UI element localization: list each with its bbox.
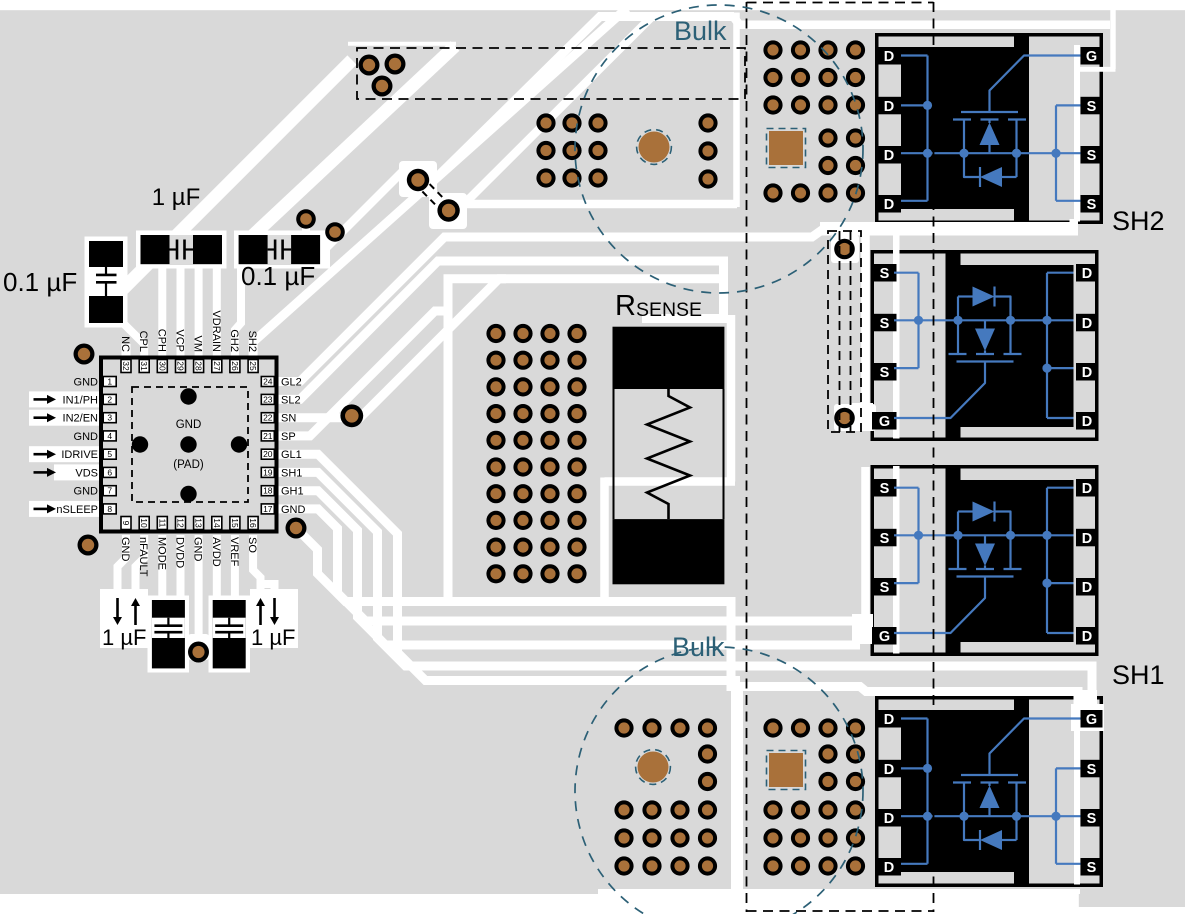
svg-text:nSLEEP: nSLEEP	[56, 504, 98, 516]
svg-text:IN1/PH: IN1/PH	[63, 394, 99, 406]
svg-text:D: D	[1082, 365, 1092, 381]
svg-text:17: 17	[263, 504, 273, 514]
svg-text:1 µF: 1 µF	[152, 184, 201, 211]
svg-text:S: S	[880, 266, 890, 282]
svg-text:G: G	[1086, 712, 1097, 728]
svg-text:S: S	[1087, 811, 1097, 827]
svg-text:28: 28	[194, 361, 204, 371]
svg-text:25: 25	[248, 361, 258, 371]
svg-text:S: S	[880, 580, 890, 596]
svg-text:G: G	[1086, 49, 1097, 65]
svg-text:D: D	[884, 49, 894, 65]
svg-text:IDRIVE: IDRIVE	[61, 449, 98, 461]
svg-text:CPH: CPH	[155, 329, 167, 352]
svg-text:22: 22	[263, 413, 273, 423]
svg-text:D: D	[884, 148, 894, 164]
svg-text:7: 7	[107, 486, 112, 496]
svg-text:19: 19	[263, 467, 273, 477]
svg-text:VCP: VCP	[174, 329, 186, 352]
svg-text:VDS: VDS	[75, 467, 98, 479]
svg-text:AVDD: AVDD	[210, 537, 222, 567]
svg-text:GND: GND	[176, 419, 202, 431]
svg-text:27: 27	[212, 361, 222, 371]
svg-text:S: S	[880, 481, 890, 497]
svg-text:S: S	[1087, 99, 1097, 115]
svg-text:D: D	[1082, 580, 1092, 596]
svg-text:11: 11	[157, 519, 167, 528]
svg-text:21: 21	[263, 431, 273, 441]
svg-text:SH1: SH1	[281, 467, 302, 479]
svg-text:VDRAIN: VDRAIN	[210, 310, 222, 352]
svg-text:2: 2	[107, 394, 112, 404]
svg-text:5: 5	[107, 449, 112, 459]
svg-text:S: S	[880, 365, 890, 381]
svg-text:26: 26	[230, 361, 240, 371]
svg-text:GH1: GH1	[281, 486, 304, 498]
svg-text:1 µF: 1 µF	[251, 625, 295, 650]
svg-text:1: 1	[107, 377, 112, 387]
svg-text:6: 6	[107, 467, 112, 477]
svg-text:(PAD): (PAD)	[173, 459, 204, 471]
svg-text:IN2/EN: IN2/EN	[63, 413, 99, 425]
svg-text:24: 24	[263, 377, 273, 387]
svg-text:D: D	[884, 811, 894, 827]
svg-text:S: S	[1087, 762, 1097, 778]
svg-text:GL2: GL2	[281, 377, 302, 389]
svg-text:31: 31	[139, 361, 149, 371]
svg-text:CPL: CPL	[137, 331, 149, 352]
svg-text:D: D	[1082, 481, 1092, 497]
svg-text:14: 14	[212, 518, 222, 528]
svg-text:S: S	[1087, 860, 1097, 876]
svg-text:MODE: MODE	[155, 537, 167, 570]
svg-text:SP: SP	[281, 431, 296, 443]
svg-text:D: D	[1082, 531, 1092, 547]
svg-text:0.1 µF: 0.1 µF	[241, 261, 315, 291]
svg-text:1 µF: 1 µF	[102, 625, 146, 650]
svg-text:12: 12	[176, 518, 186, 528]
svg-text:Bulk: Bulk	[672, 632, 725, 662]
svg-text:8: 8	[107, 504, 112, 514]
svg-text:29: 29	[176, 361, 186, 371]
svg-text:GL1: GL1	[281, 449, 302, 461]
svg-text:GND: GND	[74, 431, 99, 443]
svg-text:16: 16	[248, 518, 258, 528]
svg-text:D: D	[1082, 316, 1092, 332]
svg-text:G: G	[879, 629, 890, 645]
svg-text:9: 9	[121, 521, 131, 526]
svg-text:VM: VM	[192, 336, 204, 353]
svg-text:S: S	[1087, 197, 1097, 213]
svg-text:S: S	[1087, 148, 1097, 164]
svg-text:D: D	[1082, 629, 1092, 645]
svg-text:30: 30	[157, 361, 167, 371]
svg-text:D: D	[884, 860, 894, 876]
svg-text:SH2: SH2	[246, 331, 258, 352]
svg-text:10: 10	[139, 518, 149, 528]
svg-text:D: D	[1082, 414, 1092, 430]
svg-text:18: 18	[263, 486, 273, 496]
svg-text:GND: GND	[74, 486, 99, 498]
svg-text:SH1: SH1	[1112, 660, 1165, 690]
svg-text:GND: GND	[281, 504, 306, 516]
svg-text:GND: GND	[74, 377, 99, 389]
svg-text:D: D	[1082, 266, 1092, 282]
svg-text:G: G	[879, 414, 890, 430]
svg-text:D: D	[884, 197, 894, 213]
svg-text:15: 15	[230, 518, 240, 528]
svg-text:VREF: VREF	[228, 537, 240, 567]
svg-text:D: D	[884, 99, 894, 115]
svg-text:Bulk: Bulk	[674, 16, 727, 46]
svg-text:nFAULT: nFAULT	[137, 537, 149, 577]
svg-text:32: 32	[121, 361, 131, 371]
svg-text:SO: SO	[246, 537, 258, 553]
svg-text:23: 23	[263, 394, 273, 404]
svg-text:SL2: SL2	[281, 394, 301, 406]
svg-text:0.1 µF: 0.1 µF	[3, 267, 77, 297]
svg-text:GND: GND	[119, 537, 131, 562]
svg-text:3: 3	[107, 413, 112, 423]
svg-text:20: 20	[263, 449, 273, 459]
svg-text:4: 4	[107, 431, 112, 441]
svg-text:DVDD: DVDD	[174, 537, 186, 568]
svg-text:NC: NC	[119, 336, 131, 352]
svg-text:13: 13	[194, 518, 204, 528]
svg-text:GND: GND	[192, 537, 204, 562]
svg-text:D: D	[884, 762, 894, 778]
svg-text:S: S	[880, 531, 890, 547]
svg-text:S: S	[880, 316, 890, 332]
svg-text:GH2: GH2	[228, 329, 240, 352]
svg-text:SH2: SH2	[1112, 206, 1165, 236]
svg-text:D: D	[884, 712, 894, 728]
svg-text:SN: SN	[281, 413, 296, 425]
